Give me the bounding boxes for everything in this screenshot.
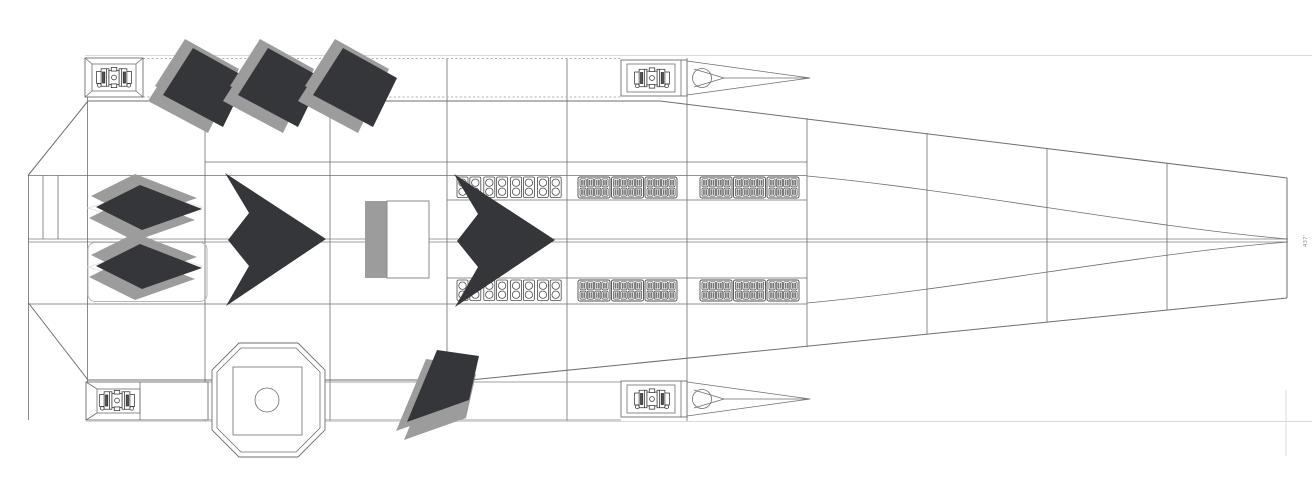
twin-circle-module (523, 177, 534, 198)
centerline (28, 239, 1288, 242)
twin-circle-module (537, 280, 548, 301)
helipad-bottom-left (86, 382, 208, 420)
helipad-top-left (85, 58, 143, 97)
bench-seat-module (578, 177, 610, 198)
twin-circle-module (497, 280, 508, 301)
twin-circle-module (511, 280, 522, 301)
bench-seat-module (700, 177, 732, 198)
twin-circle-module (497, 177, 508, 198)
flying-wing-aircraft (225, 173, 326, 306)
flat-diamond-drone (88, 174, 202, 241)
deck-horizontal-lines (28, 101, 1287, 380)
twin-circle-module (484, 177, 495, 198)
bench-seat-module (734, 177, 766, 198)
dimension-label: 437' (1303, 235, 1309, 247)
tilted-diamond-drone (298, 39, 397, 133)
bench-seat-module (645, 280, 677, 301)
twin-circle-module (550, 177, 561, 198)
octagon-platform (212, 343, 325, 457)
flat-diamond-drone (88, 233, 202, 300)
warship-deck-plan-drawing: 437' (0, 0, 1315, 480)
helipad-top-right (621, 60, 810, 96)
twin-circle-module (537, 177, 548, 198)
twin-circle-module (523, 280, 534, 301)
twin-circle-module (511, 177, 522, 198)
bench-seat-module (700, 280, 732, 301)
bench-seat-module (612, 280, 644, 301)
bench-seat-module (767, 177, 799, 198)
bench-seat-module (578, 280, 610, 301)
helipad-bottom-right (621, 381, 810, 417)
bench-seat-module (612, 177, 644, 198)
bench-seat-module (734, 280, 766, 301)
bench-seat-module (767, 280, 799, 301)
stern-structure (28, 97, 88, 420)
elevator-hatch (365, 201, 429, 278)
tilted-diamond-drone (396, 350, 479, 440)
bench-seat-module (645, 177, 677, 198)
twin-circle-module (550, 280, 561, 301)
